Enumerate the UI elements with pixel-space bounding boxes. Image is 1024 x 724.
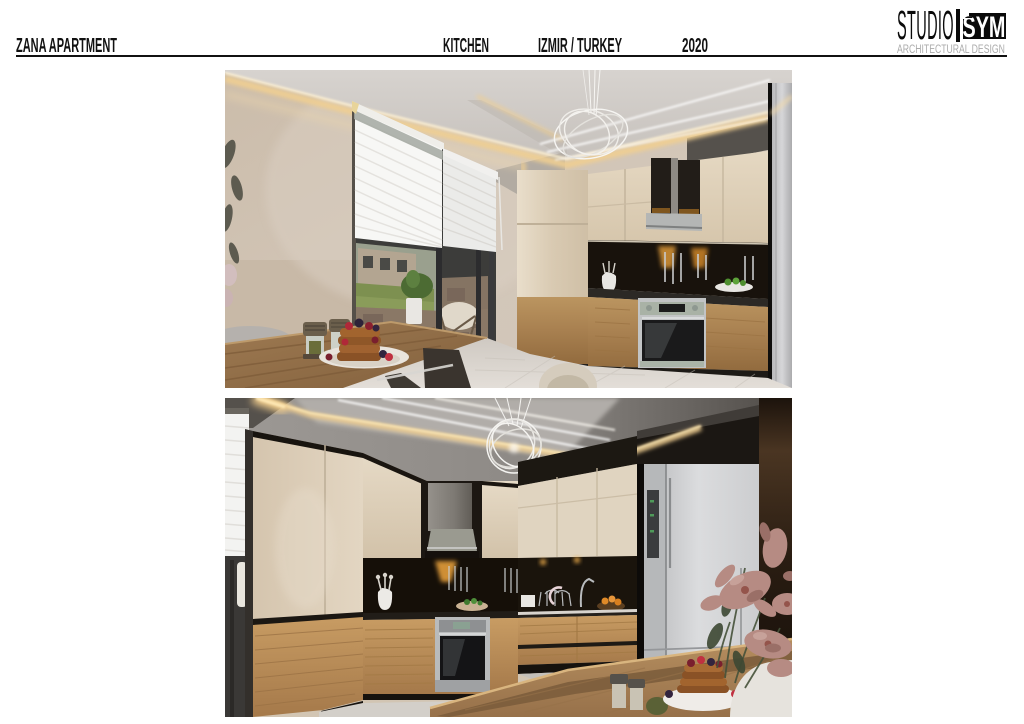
svg-text:STUDIO: STUDIO (897, 4, 954, 48)
svg-text:ARCHITECTURAL DESIGN: ARCHITECTURAL DESIGN (897, 44, 1005, 57)
